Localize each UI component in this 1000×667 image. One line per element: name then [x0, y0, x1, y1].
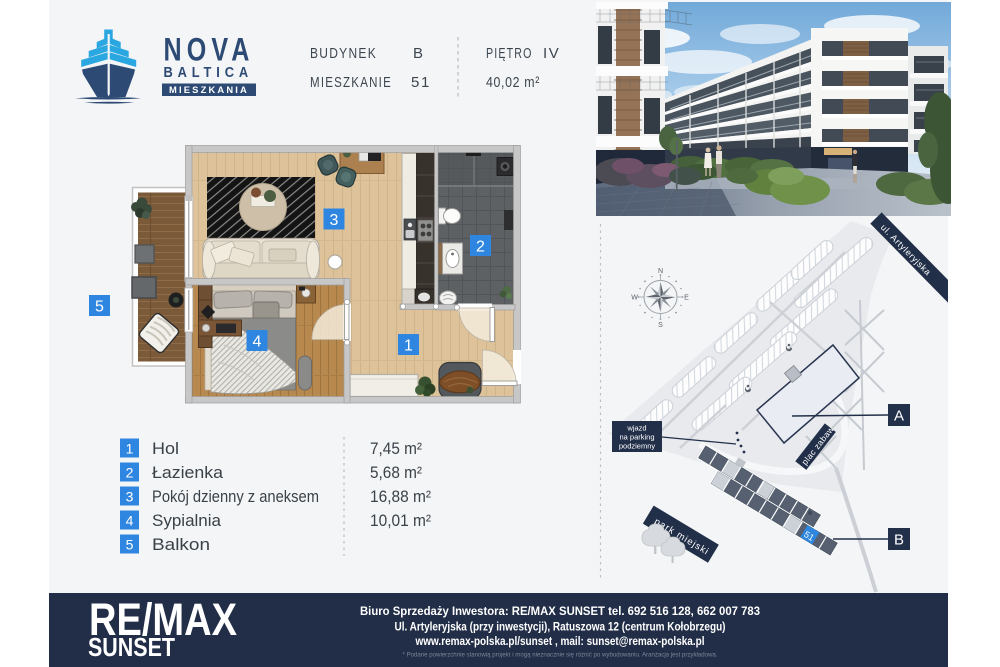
svg-text:N: N	[658, 268, 663, 275]
svg-text:W: W	[631, 295, 638, 302]
svg-text:BALTICA: BALTICA	[164, 65, 254, 81]
svg-text:Hol: Hol	[152, 440, 179, 458]
svg-text:E: E	[684, 295, 689, 302]
svg-text:Balkon: Balkon	[152, 536, 210, 554]
svg-text:www.remax-polska.pl/sunset , m: www.remax-polska.pl/sunset , mail: sunse…	[415, 634, 705, 648]
svg-text:podziemny: podziemny	[619, 442, 656, 451]
svg-text:4: 4	[126, 513, 134, 529]
svg-text:10,01 m²: 10,01 m²	[370, 512, 432, 530]
svg-text:3: 3	[126, 489, 134, 505]
svg-text:B: B	[894, 532, 904, 549]
svg-text:PIĘTRO: PIĘTRO	[486, 45, 533, 62]
svg-text:1: 1	[404, 338, 413, 355]
svg-text:5,68 m²: 5,68 m²	[370, 464, 423, 482]
svg-text:7,45 m²: 7,45 m²	[370, 440, 423, 458]
svg-text:NOVA: NOVA	[164, 32, 255, 68]
svg-text:2: 2	[476, 239, 485, 256]
svg-text:5: 5	[126, 537, 134, 553]
svg-text:A: A	[894, 408, 904, 425]
svg-text:MIESZKANIA: MIESZKANIA	[169, 85, 249, 96]
svg-text:51: 51	[411, 74, 431, 91]
svg-text:3: 3	[330, 212, 339, 229]
svg-text:B: B	[413, 45, 425, 62]
svg-text:Ul. Artyleryjska (przy inwesty: Ul. Artyleryjska (przy inwestycji), Ratu…	[395, 620, 726, 634]
svg-text:Łazienka: Łazienka	[152, 464, 223, 482]
svg-text:Pokój dzienny z aneksem: Pokój dzienny z aneksem	[152, 488, 319, 506]
svg-text:IV: IV	[543, 45, 560, 62]
svg-text:S: S	[658, 322, 663, 329]
svg-text:* Podane powierzchnie stanowią: * Podane powierzchnie stanowią projekt i…	[403, 652, 718, 659]
svg-text:BUDYNEK: BUDYNEK	[310, 45, 377, 62]
svg-text:Sypialnia: Sypialnia	[152, 512, 221, 530]
svg-text:4: 4	[253, 334, 262, 351]
svg-text:16,88 m²: 16,88 m²	[370, 488, 432, 506]
svg-text:40,02 m²: 40,02 m²	[486, 74, 540, 91]
svg-text:5: 5	[95, 299, 104, 316]
svg-text:MIESZKANIE: MIESZKANIE	[310, 74, 392, 91]
svg-text:na parking: na parking	[619, 433, 654, 442]
svg-text:2: 2	[126, 465, 134, 481]
svg-text:SUNSET: SUNSET	[88, 632, 175, 662]
svg-text:Biuro Sprzedaży Inwestora: RE/: Biuro Sprzedaży Inwestora: RE/MAX SUNSET…	[360, 604, 760, 618]
svg-text:1: 1	[126, 441, 134, 457]
svg-text:wjazd: wjazd	[626, 424, 646, 433]
